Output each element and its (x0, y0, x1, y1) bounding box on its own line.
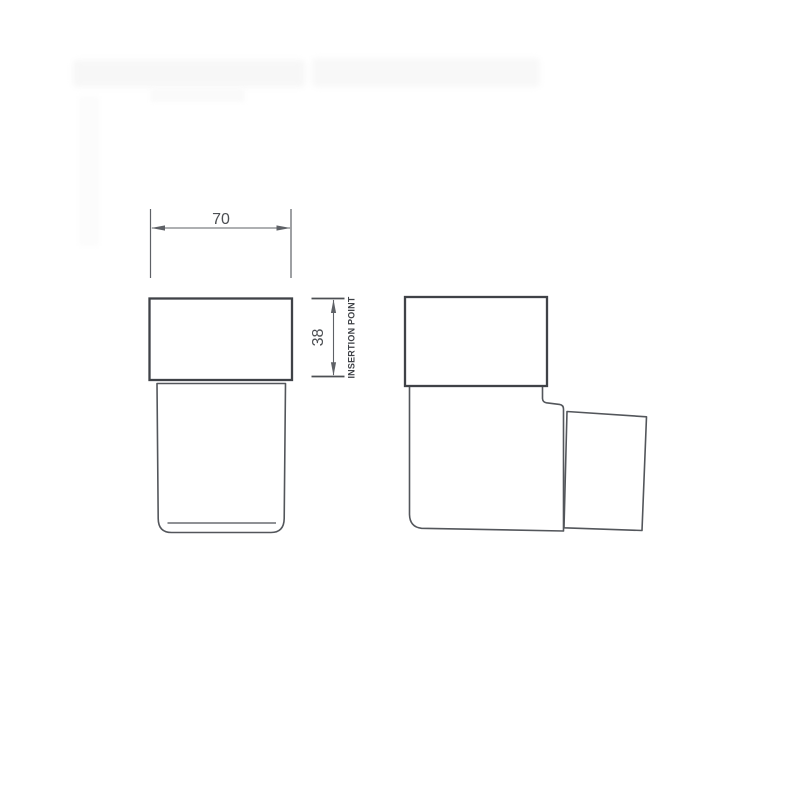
front-view-tumbler (157, 384, 286, 533)
technical-drawing: 70 38 INSERTION POINT (0, 0, 800, 800)
front-view (150, 299, 293, 533)
height-dimension: 38 INSERTION POINT (310, 296, 357, 378)
side-view-holder-body (410, 386, 564, 531)
side-view-bracket-plate (405, 297, 547, 386)
arrowhead-up-icon (331, 300, 336, 314)
front-view-bracket-plate (150, 299, 293, 381)
arrowhead-left-icon (151, 225, 165, 230)
arrowhead-right-icon (277, 225, 291, 230)
insertion-point-label: INSERTION POINT (347, 296, 357, 378)
width-dimension: 70 (151, 209, 292, 278)
width-dimension-label: 70 (212, 211, 230, 228)
arrowhead-down-icon (331, 362, 336, 376)
height-dimension-label: 38 (310, 329, 327, 347)
side-view (405, 297, 647, 531)
drawing-page: 70 38 INSERTION POINT (0, 0, 800, 800)
side-view-glass-tab (564, 412, 647, 531)
